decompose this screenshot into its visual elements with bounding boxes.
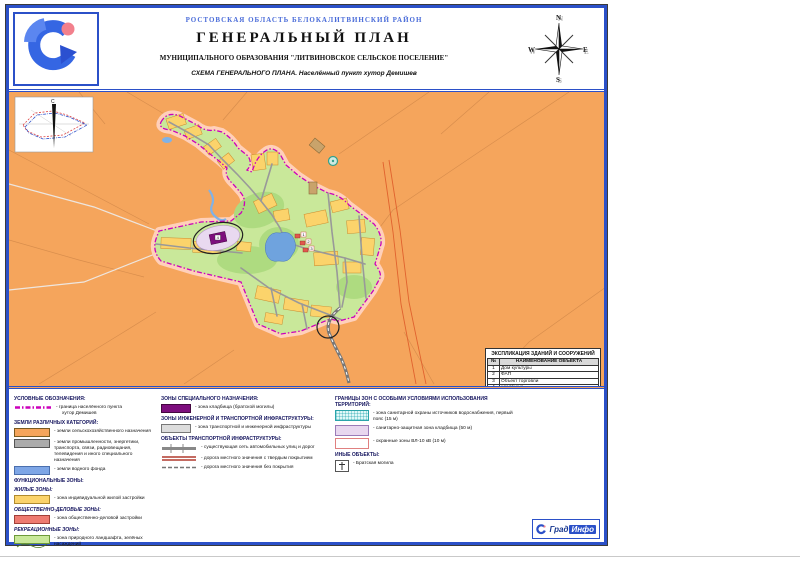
- explication-title: ЭКСПЛИКАЦИЯ ЗДАНИЙ И СООРУЖЕНИЙ: [487, 351, 599, 357]
- legend-item-boundary: - граница населённого пункта хутор Демиш…: [14, 404, 158, 417]
- legend-label: - зона индивидуальной жилой застройки: [54, 495, 145, 502]
- legend-label: - зона общественно-деловой застройки: [54, 515, 142, 522]
- legend-swatch-residential: [14, 495, 50, 504]
- legend-label: - зона кладбища (братской могилы): [195, 404, 274, 411]
- legend-item-residential: - зона индивидуальной жилой застройки: [14, 495, 158, 504]
- legend-swatch-water-protection: [335, 410, 369, 421]
- unpaved-road-icon: [161, 464, 197, 471]
- legend-swatch-cemetery: [161, 404, 191, 413]
- legend-section-header: ФУНКЦИОНАЛЬНЫЕ ЗОНЫ:: [14, 478, 158, 484]
- legend-section-header: ЗОНЫ СПЕЦИАЛЬНОГО НАЗНАЧЕНИЯ:: [161, 396, 333, 402]
- legend-section-header: ЗЕМЛИ РАЗЛИЧНЫХ КАТЕГОРИЙ:: [14, 420, 158, 426]
- legend-swatch-business: [14, 515, 50, 524]
- compass-rose: N N E E S S W W: [528, 12, 590, 84]
- legend-swatch-power-line: [335, 438, 369, 449]
- legend-label: - земли сельскохозяйственного назначения: [54, 428, 151, 435]
- legend-item-street-network: - существующая сеть автомобильных улиц и…: [161, 444, 333, 453]
- page-edge-line: [0, 556, 800, 557]
- legend-section-header: РЕКРЕАЦИОННЫЕ ЗОНЫ:: [14, 527, 158, 533]
- street-network-icon: [161, 444, 197, 453]
- pond: [265, 232, 295, 261]
- legend-title: УСЛОВНЫЕ ОБОЗНАЧЕНИЯ:: [14, 396, 158, 402]
- legend-label: - дорога местного значения без покрытия: [201, 464, 293, 471]
- footer-logo: Град Инфо: [532, 519, 600, 539]
- legend-label: хутор Демишев: [56, 411, 122, 417]
- legend-swatch-cemetery-buffer: [335, 425, 369, 436]
- plan-sheet: РОСТОВСКАЯ ОБЛАСТЬ БЕЛОКАЛИТВИНСКИЙ РАЙО…: [6, 5, 607, 545]
- org-logo: [13, 12, 99, 86]
- compass-s: S: [556, 76, 560, 84]
- legend-label: - зона санитарной охраны источников водо…: [373, 410, 523, 423]
- legend-item-business: - зона общественно-деловой застройки: [14, 515, 158, 524]
- legend-column-2: ЗОНЫ СПЕЦИАЛЬНОГО НАЗНАЧЕНИЯ: - зона кла…: [161, 393, 333, 473]
- situation-inset: С: [15, 97, 93, 152]
- legend-label: - Братская могила: [353, 460, 394, 467]
- g-logo-small-icon: [536, 524, 547, 535]
- legend-item-water: - земли водного фонда: [14, 466, 158, 475]
- paved-road-icon: [161, 455, 197, 462]
- legend-swatch-industry: [14, 439, 50, 448]
- legend: УСЛОВНЫЕ ОБОЗНАЧЕНИЯ: - граница населённ…: [9, 389, 604, 542]
- legend-item-cemetery: - зона кладбища (братской могилы): [161, 404, 333, 413]
- war-grave-icon: [335, 460, 349, 472]
- brand-name-second: Инфо: [569, 525, 596, 534]
- legend-section-header: ЖИЛЫЕ ЗОНЫ:: [14, 487, 158, 493]
- document-title: ГЕНЕРАЛЬНЫЙ ПЛАН: [104, 30, 504, 47]
- legend-swatch-transport-zone: [161, 424, 191, 433]
- legend-column-3: ГРАНИЦЫ ЗОН С ОСОБЫМИ УСЛОВИЯМИ ИСПОЛЬЗО…: [335, 393, 523, 474]
- scheme-caption: СХЕМА ГЕНЕРАЛЬНОГО ПЛАНА. Населённый пун…: [104, 70, 504, 77]
- legend-section-header: ЗОНЫ ИНЖЕНЕРНОЙ И ТРАНСПОРТНОЙ ИНФРАСТРУ…: [161, 416, 333, 422]
- legend-item-war-grave: - Братская могила: [335, 460, 523, 472]
- map-drawing: 4 1 2 3: [9, 92, 604, 384]
- compass-w: W: [528, 46, 535, 54]
- legend-item-agricultural: - земли сельскохозяйственного назначения: [14, 428, 158, 437]
- document-titles: РОСТОВСКАЯ ОБЛАСТЬ БЕЛОКАЛИТВИНСКИЙ РАЙО…: [104, 8, 504, 89]
- legend-item-industry: - земли промышленности, энергетики, тран…: [14, 439, 158, 464]
- inset-north-label: С: [51, 99, 55, 105]
- legend-section-header: ГРАНИЦЫ ЗОН С ОСОБЫМИ УСЛОВИЯМИ ИСПОЛЬЗО…: [335, 396, 523, 408]
- legend-section-header: ОБЩЕСТВЕННО-ДЕЛОВЫЕ ЗОНЫ:: [14, 507, 158, 513]
- legend-section-header: ИНЫЕ ОБЪЕКТЫ:: [335, 452, 523, 458]
- legend-label: - земли промышленности, энергетики, тран…: [54, 439, 158, 464]
- compass-n: N: [556, 14, 561, 22]
- legend-item-water-protection: - зона санитарной охраны источников водо…: [335, 410, 523, 423]
- map-area: 4 1 2 3: [9, 92, 604, 389]
- compass-rose-icon: N N E E S S W W: [528, 12, 590, 84]
- legend-label: - санитарно-защитная зона кладбища (50 м…: [373, 425, 472, 432]
- title-block: РОСТОВСКАЯ ОБЛАСТЬ БЕЛОКАЛИТВИНСКИЙ РАЙО…: [9, 8, 604, 92]
- brand-name-first: Град: [549, 525, 568, 534]
- legend-label: - дорога местного значения с твердым пок…: [201, 455, 313, 462]
- legend-label: - зона транспортной и инженерной инфраст…: [195, 424, 311, 431]
- legend-label: - земли водного фонда: [54, 466, 105, 473]
- legend-swatch-recreation: [14, 535, 50, 544]
- legend-label: - охранные зоны ВЛ-10 кВ (10 м): [373, 438, 446, 445]
- legend-swatch-agricultural: [14, 428, 50, 437]
- legend-item-cemetery-buffer: - санитарно-защитная зона кладбища (50 м…: [335, 425, 523, 436]
- explication-table: ЭКСПЛИКАЦИЯ ЗДАНИЙ И СООРУЖЕНИЙ № НАИМЕН…: [485, 348, 601, 389]
- legend-item-recreation: - зона природного ландшафта, зелёных нас…: [14, 535, 158, 548]
- compass-e: E: [583, 46, 588, 54]
- legend-item-power-line: - охранные зоны ВЛ-10 кВ (10 м): [335, 438, 523, 449]
- recreation-squiggle-icon: [15, 542, 49, 549]
- g-logo-icon: [15, 14, 93, 80]
- document-subtitle: МУНИЦИПАЛЬНОГО ОБРАЗОВАНИЯ "ЛИТВИНОВСКОЕ…: [104, 54, 504, 62]
- legend-item-unpaved-road: - дорога местного значения без покрытия: [161, 464, 333, 471]
- region-line: РОСТОВСКАЯ ОБЛАСТЬ БЕЛОКАЛИТВИНСКИЙ РАЙО…: [104, 16, 504, 24]
- legend-label: - существующая сеть автомобильных улиц и…: [201, 444, 315, 451]
- farm-building: [309, 182, 317, 194]
- legend-item-paved-road: - дорога местного значения с твердым пок…: [161, 455, 333, 462]
- boundary-line-icon: [14, 404, 52, 411]
- legend-item-transport-zone: - зона транспортной и инженерной инфраст…: [161, 424, 333, 433]
- legend-column-1: УСЛОВНЫЕ ОБОЗНАЧЕНИЯ: - граница населённ…: [14, 393, 158, 550]
- legend-label: - зона природного ландшафта, зелёных нас…: [54, 535, 158, 548]
- legend-swatch-water: [14, 466, 50, 475]
- legend-section-header: ОБЪЕКТЫ ТРАНСПОРТНОЙ ИНФРАСТРУКТУРЫ:: [161, 436, 333, 442]
